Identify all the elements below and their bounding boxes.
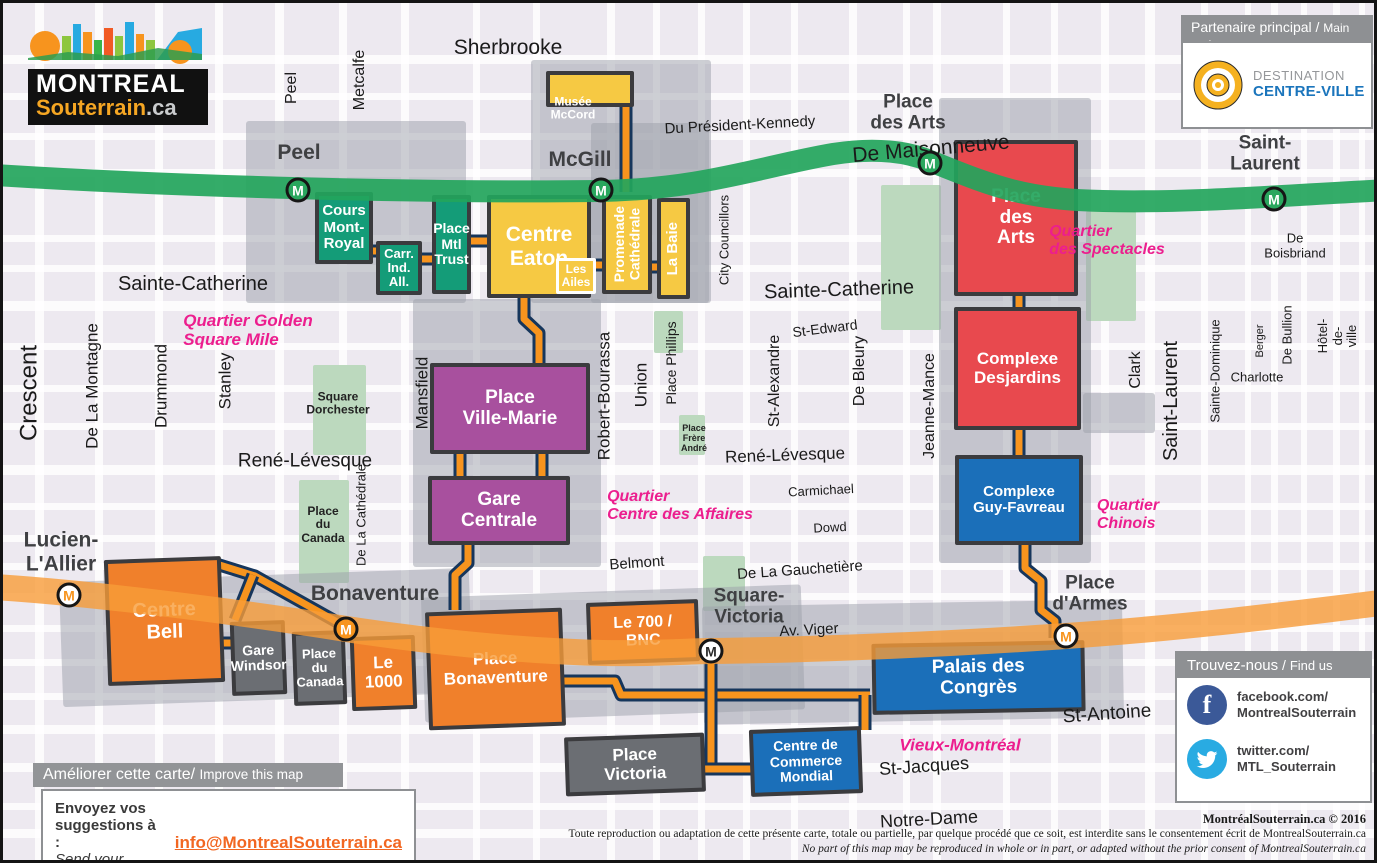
street-label-mansfield: Mansfield <box>412 357 431 430</box>
station-marker-square-victoria: M <box>699 639 724 664</box>
partner-brand-line2: CENTRE-VILLE <box>1253 83 1365 100</box>
building-carrefour-industriel-alliance: Carr. Ind. All. <box>376 241 422 295</box>
building-label-place-montreal-trust: Place Mtl Trust <box>433 221 470 267</box>
street-label-sherbrooke: Sherbrooke <box>454 36 563 60</box>
street-label-robert-bourassa: Robert-Bourassa <box>594 332 613 461</box>
building-place-des-arts-building: Place des Arts <box>954 140 1078 296</box>
station-marker-mcgill: M <box>589 178 614 203</box>
street-label-sainte-catherine: Sainte-Catherine <box>118 273 268 295</box>
destination-centre-ville-target-icon <box>1189 55 1247 113</box>
street-h-462 <box>3 465 1374 475</box>
street-label-st-alexandre: St-Alexandre <box>766 335 784 428</box>
building-label-gare-centrale: Gare Centrale <box>461 490 537 532</box>
street-label-drummond: Drummond <box>151 344 170 428</box>
street-v-212 <box>215 3 223 860</box>
montreal-souterrain-map: Cours Mont- RoyalCarr. Ind. All.Place Mt… <box>0 0 1377 863</box>
logo-text-ca: .ca <box>146 95 177 120</box>
building-label-centre-de-commerce-mondial: Centre de Commerce Mondial <box>769 737 843 786</box>
street-label-sainte-dominique: Sainte-Dominique <box>1209 319 1224 422</box>
station-label-place-d-armes: Place d'Armes <box>1052 573 1127 616</box>
street-label-crescent: Crescent <box>17 345 44 441</box>
street-label-de-la-cath-drale: De La Cathédrale <box>355 464 370 566</box>
copyright-block: MontréalSouterrain.ca © 2016 Toute repro… <box>569 811 1366 857</box>
street-v-152 <box>155 3 163 860</box>
district-label-vieux-montr-al: Vieux-Montréal <box>899 735 1020 754</box>
station-marker-place-d-armes: M <box>1054 624 1079 649</box>
station-label-bonaventure: Bonaventure <box>311 582 439 606</box>
zone-uz-clark-link <box>1083 393 1155 433</box>
street-label-jeanne-mance: Jeanne-Mance <box>921 353 939 459</box>
building-place-bonaventure: Place Bonaventure <box>425 608 566 731</box>
suggestions-email-link[interactable]: info@MontrealSouterrain.ca <box>175 833 402 853</box>
street-label-union: Union <box>631 363 650 407</box>
building-label-complexe-desjardins: Complexe Desjardins <box>974 350 1061 387</box>
district-label-quartier-centre-des-affaires: Quartier Centre des Affaires <box>607 488 753 524</box>
building-label-place-du-canada-building: Place du Canada <box>295 646 343 691</box>
building-label-la-baie: La Baie <box>665 222 682 275</box>
partner-header-fr: Partenaire principal <box>1191 19 1312 35</box>
station-label-place-des-arts: Place des Arts <box>870 92 945 135</box>
station-label-saint-laurent: Saint- Laurent <box>1230 133 1300 176</box>
street-label-ren-l-vesque-2: René-Lévesque <box>725 443 846 466</box>
building-palais-des-congres: Palais des Congrès <box>871 640 1085 715</box>
facebook-handle: facebook.com/ MontrealSouterrain <box>1237 689 1356 722</box>
street-label-stanley: Stanley <box>215 353 234 410</box>
street-h-532 <box>3 535 1374 542</box>
building-la-baie: La Baie <box>657 198 690 299</box>
building-label-place-victoria: Place Victoria <box>603 745 666 785</box>
street-label-ren-l-vesque: René-Lévesque <box>238 450 372 471</box>
building-label-carrefour-industriel-alliance: Carr. Ind. All. <box>384 247 414 290</box>
building-label-centre-bell: Centre Bell <box>132 598 197 644</box>
street-label-de-la-montagne: De La Montagne <box>82 323 101 449</box>
station-marker-bonaventure: M <box>334 617 359 642</box>
station-label-lucien-l-allier: Lucien- L'Allier <box>24 528 99 575</box>
improve-map-box: Envoyez vos suggestions à : Send your co… <box>41 789 416 863</box>
street-label-berger: Berger <box>1254 324 1266 357</box>
building-cours-mont-royal: Cours Mont- Royal <box>315 192 373 264</box>
building-place-ville-marie: Place Ville-Marie <box>430 363 590 454</box>
street-label-charlotte: Charlotte <box>1231 371 1284 386</box>
area-label-square-dorchester: Square Dorchester <box>306 391 369 418</box>
find-us-header-fr: Trouvez-nous <box>1187 657 1278 674</box>
find-us-header-en: Find us <box>1290 658 1333 673</box>
area-label-mus-e-mccord: Musée McCord <box>551 96 596 123</box>
street-label-metcalfe: Metcalfe <box>351 50 369 110</box>
district-label-quartier-chinois: Quartier Chinois <box>1097 497 1159 533</box>
partner-box: DESTINATION CENTRE-VILLE <box>1181 41 1373 129</box>
station-label-peel: Peel <box>277 141 320 165</box>
street-label-city-councillors: City Councillors <box>718 195 733 285</box>
park-pda-west <box>881 185 941 330</box>
find-us-header: Trouvez-nous / Find us <box>1177 653 1370 678</box>
area-label-place-fr-re-andr: Place Frère André <box>681 423 707 453</box>
building-le-1000: Le 1000 <box>350 635 418 711</box>
building-place-montreal-trust: Place Mtl Trust <box>432 195 471 294</box>
suggestions-label-en: Send your comments at: <box>55 851 161 863</box>
building-label-place-bonaventure: Place Bonaventure <box>443 649 548 690</box>
improve-map-header: Améliorer cette carte/ Improve this map <box>33 763 343 787</box>
street-label-h-tel-de-ville: Hôtel-de-ville <box>1316 318 1360 354</box>
building-label-le-1000: Le 1000 <box>364 654 403 693</box>
building-place-victoria: Place Victoria <box>564 733 706 797</box>
building-label-complexe-guy-favreau: Complexe Guy-Favreau <box>973 484 1065 517</box>
improve-header-en: Improve this map <box>200 767 304 782</box>
street-label-place-phillips: Place Phillips <box>664 321 680 404</box>
find-us-header-separator: / <box>1282 657 1286 673</box>
area-label-place-du-canada: Place du Canada <box>301 505 344 545</box>
suggestions-label-fr: Envoyez vos suggestions à : <box>55 800 161 851</box>
street-label-de-boisbriand: De Boisbriand <box>1256 231 1335 260</box>
district-label-quartier-des-spectacles: Quartier des Spectacles <box>1049 223 1165 259</box>
improve-header-fr: Améliorer cette carte/ <box>43 766 195 783</box>
copyright-signature: MontréalSouterrain.ca © 2016 <box>569 811 1366 827</box>
station-label-mcgill: McGill <box>548 148 611 172</box>
logo-skyline-icon <box>28 18 202 64</box>
building-gare-windsor: Gare Windsor <box>230 620 288 696</box>
twitter-icon <box>1187 739 1227 779</box>
building-centre-de-commerce-mondial: Centre de Commerce Mondial <box>749 726 863 797</box>
station-marker-saint-laurent: M <box>1262 187 1287 212</box>
street-label-peel: Peel <box>283 72 301 104</box>
site-logo: MONTREAL Souterrain.ca <box>28 18 208 125</box>
twitter-row[interactable]: twitter.com/ MTL_Souterrain <box>1177 732 1370 786</box>
street-label-av-viger: Av. Viger <box>779 621 839 641</box>
building-label-promenade-cathedrale: Promenade Cathédrale <box>612 206 643 282</box>
building-centre-bell: Centre Bell <box>104 556 225 686</box>
find-us-box: Trouvez-nous / Find us f facebook.com/ M… <box>1175 651 1372 803</box>
street-label-saint-laurent: Saint-Laurent <box>1160 341 1182 461</box>
street-label-clark: Clark <box>1127 351 1145 388</box>
logo-text-montreal: MONTREAL <box>36 70 186 98</box>
district-label-quartier-golden-square-mile: Quartier Golden Square Mile <box>183 311 312 349</box>
building-place-du-canada-building: Place du Canada <box>292 630 348 706</box>
building-complexe-guy-favreau: Complexe Guy-Favreau <box>955 455 1083 545</box>
station-marker-peel: M <box>286 178 311 203</box>
building-label-palais-des-congres: Palais des Congrès <box>932 656 1026 699</box>
building-label-place-ville-marie: Place Ville-Marie <box>463 388 558 430</box>
building-label-place-des-arts-building: Place des Arts <box>991 187 1041 250</box>
building-label-les-ailes: Les Ailes <box>562 263 591 289</box>
street-label-carmichael: Carmichael <box>788 482 854 500</box>
partner-header-separator: / <box>1316 19 1320 35</box>
station-label-square-victoria: Square- Victoria <box>714 586 785 629</box>
copyright-text-en: No part of this map may be reproduced in… <box>569 842 1366 857</box>
street-label-st-jacques: St-Jacques <box>878 753 969 779</box>
building-label-cours-mont-royal: Cours Mont- Royal <box>322 203 365 253</box>
building-les-ailes: Les Ailes <box>556 258 596 294</box>
twitter-handle: twitter.com/ MTL_Souterrain <box>1237 743 1336 776</box>
street-label-de-bleury: De Bleury <box>851 336 869 406</box>
facebook-row[interactable]: f facebook.com/ MontrealSouterrain <box>1177 678 1370 732</box>
station-marker-place-des-arts: M <box>918 151 943 176</box>
facebook-icon: f <box>1187 685 1227 725</box>
building-complexe-desjardins: Complexe Desjardins <box>954 307 1081 430</box>
building-label-le-700-bnc: Le 700 / BNC <box>613 613 673 650</box>
copyright-text-fr: Toute reproduction ou adaptation de cett… <box>569 827 1366 842</box>
logo-text-souterrain: Souterrain <box>36 95 146 120</box>
street-label-dowd: Dowd <box>813 520 847 536</box>
building-gare-centrale: Gare Centrale <box>428 476 570 545</box>
building-promenade-cathedrale: Promenade Cathédrale <box>602 195 652 294</box>
street-label-de-bullion: De Bullion <box>1281 305 1296 364</box>
building-label-gare-windsor: Gare Windsor <box>230 642 287 675</box>
building-le-700-bnc: Le 700 / BNC <box>586 599 700 665</box>
station-marker-lucien-l-allier: M <box>57 583 82 608</box>
partner-brand-line1: DESTINATION <box>1253 68 1365 83</box>
